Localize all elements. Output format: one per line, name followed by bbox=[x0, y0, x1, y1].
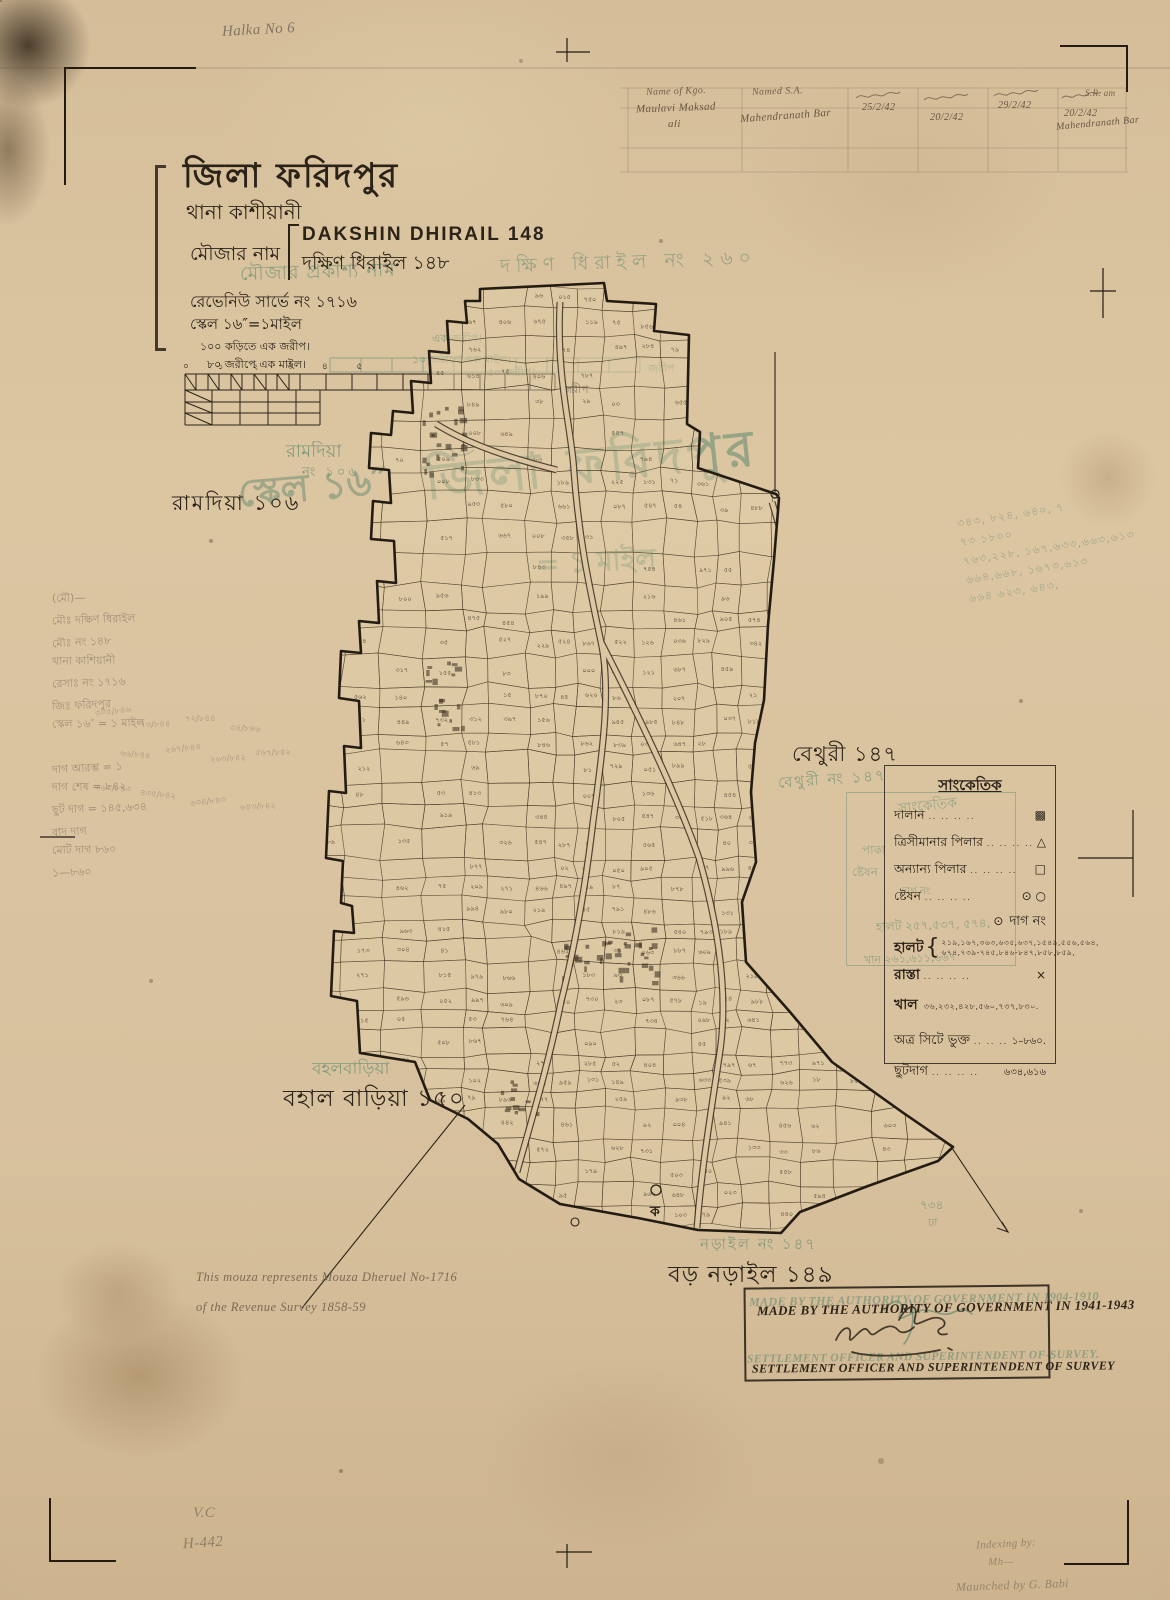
halot-numbers-2: ৬৭৪,৭৩৯-৭৪৫,৮৪৬-৮৪৭,৮৫৮,৮৫৯, bbox=[941, 948, 1098, 958]
mouza-note-line1: This mouza represents Mouza Dheruel No-1… bbox=[196, 1270, 457, 1285]
legend-leader: .. .. .. .. bbox=[928, 1067, 1004, 1077]
legend-leader: .. .. .. .. bbox=[920, 971, 1036, 981]
chhutdag-value: ৬৩৪,৬১৬ bbox=[1004, 1065, 1046, 1082]
name-bracket bbox=[288, 224, 299, 280]
left-pencil-notes: (মৌ)—মৌঃ দক্ষিণ ধিরাইলমৌঃ নং ১৪৮থানা কাশ… bbox=[52, 588, 252, 882]
building-symbol-icon: ▩ bbox=[1035, 808, 1046, 822]
sheet-included-value: ১–৮৬০. bbox=[1012, 1034, 1046, 1051]
other-pillar-icon: □ bbox=[1035, 862, 1046, 876]
station-ka-label: ক bbox=[650, 1200, 660, 1224]
legend-row-sheet: অত্র সিটে ভুক্ত .. .. .. .. ১–৮৬০. bbox=[894, 1031, 1046, 1052]
chhutdag-label: ছুটদাগ bbox=[894, 1062, 928, 1083]
legend-row-dag: ⊙ দাগ নং bbox=[894, 912, 1046, 933]
dag-circle-icon: ⊙ bbox=[993, 914, 1003, 928]
legend-row-dalan: দালান .. .. .. .. ▩ bbox=[894, 807, 1046, 827]
table-date-4: 20/2/42 bbox=[1064, 108, 1097, 119]
legend-row-halot: হালট { ২১৯,১৬৭,৩৬৩,৬৩৫,৬৩৭,১৫৪৯,৫৫৬,৫৬৪,… bbox=[894, 935, 1046, 960]
bethuri-label: বেথুরী ১৪৭ bbox=[792, 738, 898, 773]
halot-brace: { bbox=[925, 935, 939, 960]
pencil-h442-note: H-442 bbox=[182, 1534, 223, 1554]
mouza-name-label: মৌজার নাম bbox=[190, 240, 280, 272]
halot-numbers-1: ২১৯,১৬৭,৩৬৩,৬৩৫,৬৩৭,১৫৪৯,৫৫৬,৫৬৪, bbox=[941, 938, 1098, 948]
rasta-label: রাস্তা bbox=[894, 963, 920, 987]
legend-box: সাংকেতিক দালান .. .. .. .. ▩ ত্রিসীমানার… bbox=[884, 765, 1056, 1064]
sheet-included-label: অত্র সিটে ভুক্ত bbox=[894, 1031, 970, 1052]
table-date-1: 25/2/42 bbox=[862, 102, 895, 113]
kori-note: ১০০ কড়িতে এক জরীপ। bbox=[200, 338, 310, 357]
halka-note: Halka No 6 bbox=[222, 20, 296, 41]
legend-row-trisimana: ত্রিসীমানার পিলার .. .. .. .. △ bbox=[894, 834, 1046, 854]
pencil-fraction: ২৬৩/৮৪২ bbox=[210, 751, 247, 767]
pencil-fraction: ৭৩/৮৪৪ bbox=[140, 717, 171, 733]
tri-boundary-pillar-icon: △ bbox=[1037, 835, 1046, 849]
pencil-fraction: ৩৬৩/৮৪৩ bbox=[95, 781, 132, 797]
thana-title: থানা কাশীয়ানী bbox=[186, 198, 301, 231]
mouza-name-latin: DAKSHIN DHIRAIL 148 bbox=[302, 224, 546, 246]
legend-title: সাংকেতিক bbox=[894, 774, 1046, 799]
halot-label: হালট bbox=[894, 936, 923, 960]
legend-trisimana-label: ত্রিসীমানার পিলার bbox=[894, 834, 983, 854]
legend-row-khal: খাল ৩৬,২৩২,৪২৮,৫৬০,৭৩৭,৮৩০. bbox=[894, 993, 1046, 1017]
pencil-indexing-note: Indexing by: bbox=[976, 1536, 1037, 1551]
legend-pillar-label: অন্যান্য পিলার bbox=[894, 861, 966, 881]
pencil-fraction: ৩৪/৮৪৬ bbox=[230, 721, 261, 737]
legend-dalan-label: দালান bbox=[894, 807, 925, 827]
khal-label: খাল bbox=[894, 993, 918, 1017]
legend-row-pillar: অন্যান্য পিলার .. .. .. .. □ bbox=[894, 861, 1046, 881]
table-name-mahendranath-1: Mahendranath Bar bbox=[740, 107, 832, 125]
revenue-survey-no: রেভেনিউ সার্ভে নং ১৭১৬ bbox=[190, 289, 357, 316]
title-brace bbox=[155, 165, 166, 351]
table-date-3: 29/2/42 bbox=[998, 100, 1031, 111]
rasta-mark-icon: × bbox=[1036, 968, 1046, 982]
legend-leader: .. .. .. .. bbox=[921, 892, 1022, 902]
pencil-fraction: ৭২/৮৪৪ bbox=[185, 712, 215, 726]
legend-row-chhutdag: ছুটদাগ .. .. .. .. ৬৩৪,৬১৬ bbox=[894, 1062, 1046, 1083]
legend-leader: .. .. .. .. bbox=[970, 1036, 1012, 1046]
mouza-note-line2: of the Revenue Survey 1858-59 bbox=[196, 1300, 366, 1315]
ink-text-layer: Halka No 6 জিলা ফরিদপুর থানা কাশীয়ানী ম… bbox=[0, 0, 1170, 1600]
station-symbol-icon: ⊙ ○ bbox=[1022, 889, 1046, 903]
pencil-checked-note: Maunched by G. Babi bbox=[956, 1576, 1069, 1595]
dag-number-label: দাগ নং bbox=[1009, 912, 1046, 933]
table-header-named-sa: Named S.A. bbox=[752, 85, 803, 98]
table-date-2: 20/2/42 bbox=[930, 112, 963, 123]
legend-row-steshon: ষ্টেষন .. .. .. .. ⊙ ○ bbox=[894, 888, 1046, 908]
table-header-sr-am: S.R. am bbox=[1085, 88, 1116, 98]
mouza-name-bengali: দক্ষিণ ধিরাইল ১৪৮ bbox=[302, 249, 449, 281]
legend-leader: .. .. .. .. bbox=[966, 865, 1034, 875]
pencil-fraction: ৫৬৭/৮৪২ bbox=[255, 746, 291, 760]
khal-numbers: ৩৬,২৩২,৪২৮,৫৬০,৭৩৭,৮৩০. bbox=[924, 1002, 1039, 1012]
table-header-name-kgo: Name of Kgo. bbox=[646, 85, 706, 98]
pencil-vc-note: V.C bbox=[193, 1505, 215, 1522]
map-sheet: মৌজার প্রকাশ্য নাম দক্ষিণ ধিরাইল নং ২৬০ … bbox=[0, 0, 1170, 1600]
scale-statement: স্কেল ১৬″=১মাইল bbox=[190, 313, 302, 338]
bahal-baria-label: বহাল বাড়িয়া ১৫০ bbox=[283, 1080, 465, 1119]
legend-leader: .. .. .. .. bbox=[925, 811, 1035, 821]
legend-leader: .. .. .. .. bbox=[983, 838, 1037, 848]
table-name-ali: ali bbox=[668, 118, 681, 130]
legend-steshon-label: ষ্টেষন bbox=[894, 888, 921, 908]
pencil-indexing-note-2: Mh— bbox=[988, 1556, 1014, 1568]
legend-row-rasta: রাস্তা .. .. .. .. × bbox=[894, 963, 1046, 987]
table-name-maulavi: Maulavi Maksad bbox=[636, 101, 716, 116]
pencil-fraction: ৬৪৩/৮৪২ bbox=[240, 799, 277, 815]
jarip-note: ৮০ জরীপে এক মাইল। bbox=[207, 356, 306, 375]
ramdia-label: রামদিয়া ১০৬ bbox=[172, 487, 300, 522]
stamp-officer-line: SETTLEMENT OFFICER AND SUPERINTENDENT OF… bbox=[752, 1358, 1115, 1376]
